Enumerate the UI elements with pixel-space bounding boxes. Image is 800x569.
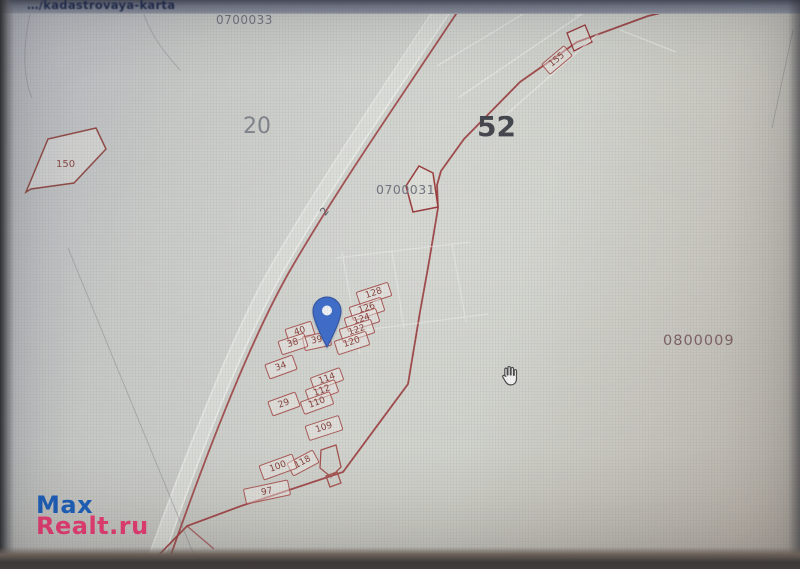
parcel-109[interactable]: 109	[304, 415, 343, 441]
zone-label-52: 52	[477, 110, 516, 143]
parcel-label: 120	[342, 336, 361, 350]
parcel-label: 97	[260, 486, 273, 497]
site-watermark: Max Realt.ru	[36, 495, 149, 537]
map-pin[interactable]	[312, 296, 342, 348]
photographed-screen: 1281261241221204039383411411211029109118…	[0, 0, 800, 569]
parcel-100[interactable]: 100	[258, 453, 297, 480]
parcel-34[interactable]: 34	[264, 354, 298, 379]
parcel-label: 155	[548, 51, 567, 69]
parcel-label: 29	[277, 398, 291, 410]
address-bar[interactable]: …/kadastrovaya-karta	[0, 0, 800, 14]
hand-cursor-icon	[497, 362, 523, 390]
quarter-label-0700031: 0700031	[376, 182, 435, 197]
zone-label-20: 20	[243, 114, 271, 139]
parcel-155[interactable]: 155	[541, 45, 573, 75]
parcel-label: 109	[314, 421, 333, 435]
parcel-150-label: 150	[56, 159, 75, 170]
parcel-38[interactable]: 38	[277, 333, 308, 356]
parcel-97[interactable]: 97	[243, 479, 291, 504]
parcel-110[interactable]: 110	[300, 391, 335, 415]
parcel-label: 100	[268, 460, 287, 474]
parcel-layer: 1281261241221204039383411411211029109118…	[0, 0, 800, 569]
parcel-29[interactable]: 29	[267, 391, 301, 416]
parcel-label: 110	[307, 396, 326, 410]
quarter-label-0800009: 0800009	[663, 333, 735, 349]
address-text: …/kadastrovaya-karta	[27, 0, 175, 12]
watermark-line2: Realt.ru	[36, 516, 149, 537]
parcel-label: 34	[274, 361, 288, 373]
parcel-label: 38	[286, 338, 300, 350]
quarter-label-0700033: 0700033	[216, 13, 273, 27]
